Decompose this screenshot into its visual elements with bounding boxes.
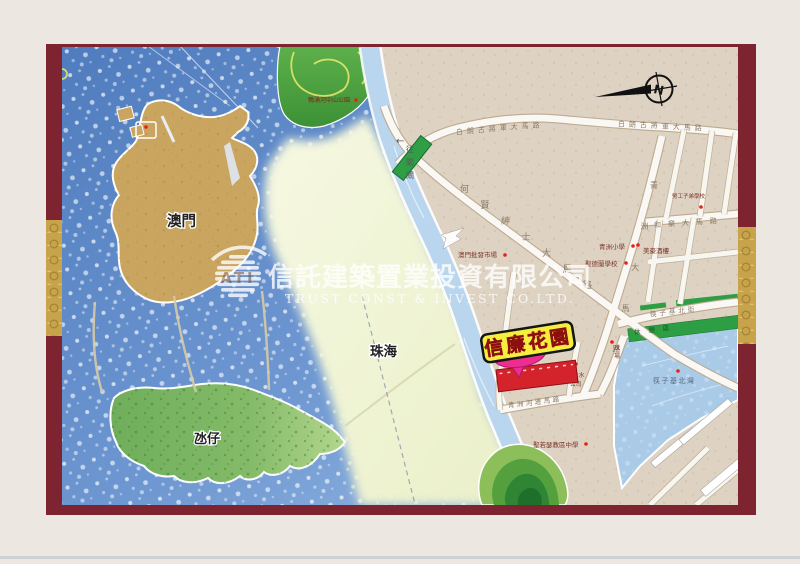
landmark-label: 澳門批發市場 (458, 250, 498, 259)
landmark-label: 鴨涌河中山公園 (308, 96, 350, 104)
landmark-dot (144, 125, 148, 129)
direction-label: 往關閘 (406, 144, 419, 180)
frame-left-bar (46, 44, 62, 505)
frame-maroon-segment (46, 336, 62, 505)
frame-right-bar (738, 44, 756, 505)
landmark-label: 青洲小學 (599, 242, 626, 251)
brochure-page: 白朗古將軍大馬路 白朗古將軍大馬路 何賢紳士大馬路 和樂大馬路 青洲大馬路 筷子… (0, 0, 800, 564)
landmark-label: 美豪酒樓 (643, 246, 670, 255)
landmark-label: 筷子基北灣 (653, 376, 696, 385)
frame-maroon-segment (738, 344, 756, 505)
frame-maroon-segment (46, 44, 62, 220)
watermark-company-zh: 信託建築置業投資有限公司 (268, 262, 592, 293)
reclamation-islet (130, 125, 144, 138)
area-label-macau: 澳門 (167, 212, 196, 230)
frame-bottom-border (46, 505, 756, 515)
location-map: 白朗古將軍大馬路 白朗古將軍大馬路 何賢紳士大馬路 和樂大馬路 青洲大馬路 筷子… (62, 46, 738, 505)
logo-letters: ATI (220, 269, 255, 287)
left-arrow-icon: ← (396, 136, 404, 147)
landmark-label: 勞工子弟學校 (672, 192, 706, 200)
watermark-company-en: TRUST CONST & INVEST CO.LTD. (285, 291, 575, 306)
area-label-taipa: 氹仔 (194, 431, 220, 447)
frame-top-border (46, 44, 756, 47)
area-label-zhuhai: 珠海 (370, 343, 397, 360)
frame-maroon-segment (738, 44, 756, 227)
frame-gold-pattern-segment (738, 227, 756, 344)
frame-gold-pattern-segment (46, 220, 62, 336)
map-card: 白朗古將軍大馬路 白朗古將軍大馬路 何賢紳士大馬路 和樂大馬路 青洲大馬路 筷子… (46, 44, 756, 515)
scan-edge-line (0, 556, 800, 559)
landmark-label: 聖若瑟教區中學 (533, 440, 579, 449)
